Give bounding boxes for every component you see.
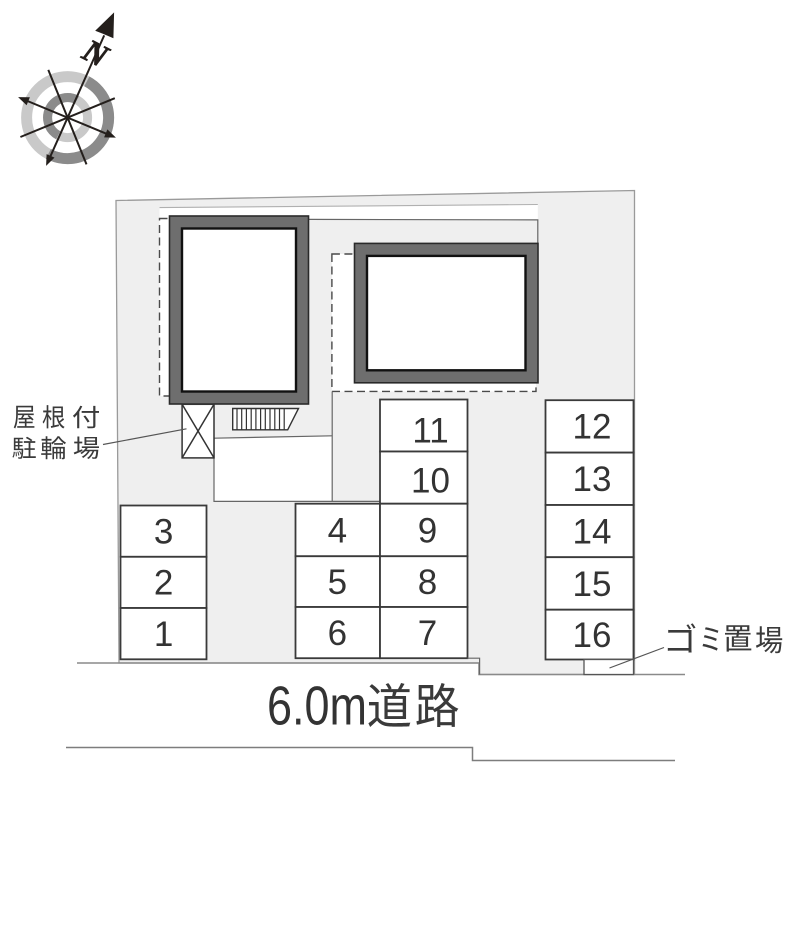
svg-text:7: 7 [418,614,437,653]
svg-text:13: 13 [573,460,612,499]
svg-text:11: 11 [412,411,448,450]
svg-text:3: 3 [154,512,173,551]
svg-text:6: 6 [328,614,347,653]
svg-text:2: 2 [154,564,173,603]
svg-text:8: 8 [418,563,437,602]
svg-text:6.0m: 6.0m [267,675,367,737]
svg-text:12: 12 [573,408,612,447]
svg-text:10: 10 [411,461,450,500]
svg-text:16: 16 [573,616,612,655]
svg-text:1: 1 [154,615,173,654]
svg-text:14: 14 [573,512,612,551]
svg-text:9: 9 [418,511,437,550]
svg-text:4: 4 [328,511,347,550]
svg-text:5: 5 [328,563,347,602]
svg-text:15: 15 [573,565,612,604]
